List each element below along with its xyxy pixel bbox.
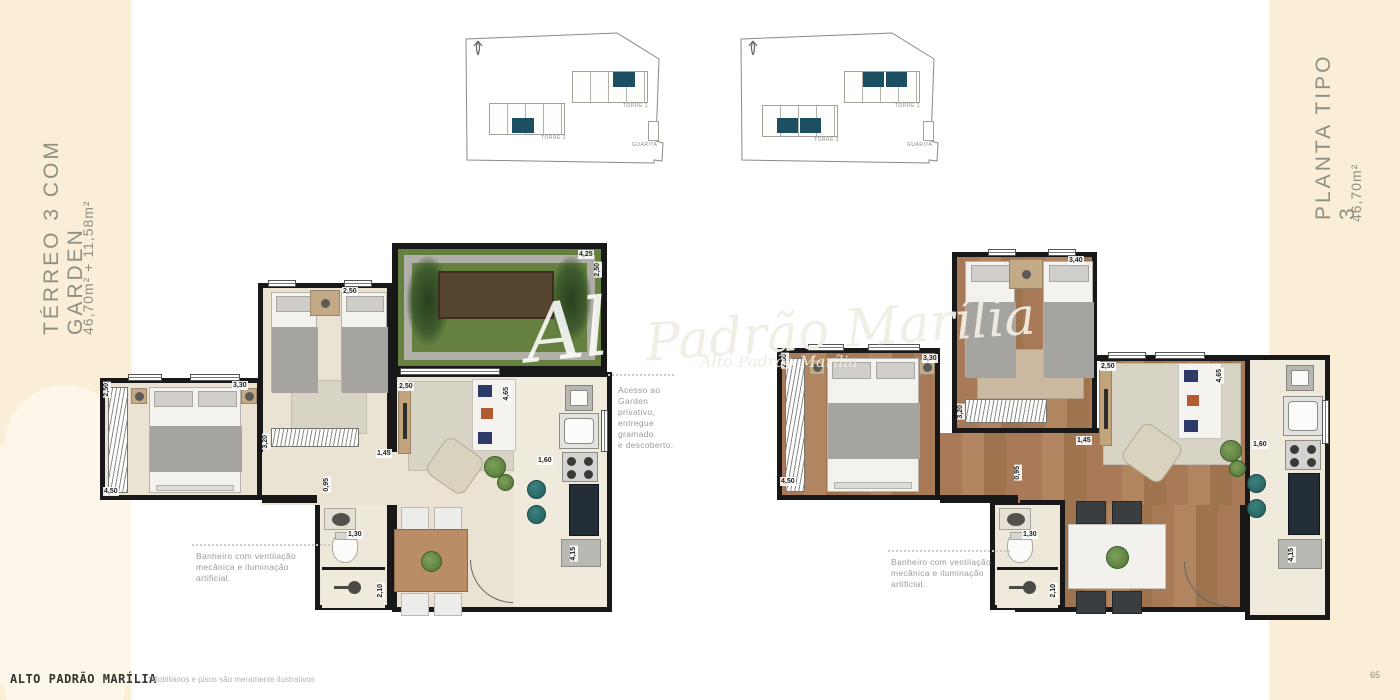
highlighted-unit <box>863 72 884 87</box>
tower-grid <box>573 72 647 102</box>
wall-segment <box>940 495 1018 503</box>
microwave <box>1286 365 1314 391</box>
dim-kitchen-width: 1,60 <box>1252 440 1268 449</box>
stool <box>1247 499 1266 518</box>
tower-2-footprint <box>762 105 838 137</box>
window <box>868 344 920 351</box>
page-subtitle-left: 46,70m² + 11,58m² <box>80 175 96 335</box>
torre1-label: TORRE 1 <box>623 103 648 109</box>
guarita-building <box>923 121 934 141</box>
nightstand <box>809 359 825 375</box>
kitchen-counter <box>1288 473 1320 535</box>
single-bed <box>965 261 1015 377</box>
torre1-label: TORRE 1 <box>895 103 920 109</box>
garden-annotation: Acesso ao Garden privativo, entregue gra… <box>618 385 682 451</box>
stool <box>1247 474 1266 493</box>
page-number: 65 <box>1370 670 1380 680</box>
disclaimer-text: *Mobiliários e pisos são meramente ilust… <box>148 675 315 684</box>
bathroom-annotation-right: Banheiro com ventilação mecânica e ilumi… <box>891 557 1011 590</box>
tv-console <box>1099 370 1112 446</box>
highlighted-unit <box>777 118 798 133</box>
tower-1-footprint <box>572 71 648 103</box>
annotation-leader-line <box>192 544 330 546</box>
window <box>1048 249 1076 256</box>
dim-living-width: 2,50 <box>1100 362 1116 371</box>
kitchen-sink <box>1283 396 1323 436</box>
tower-1-footprint <box>844 71 920 103</box>
dining-chair <box>1112 501 1142 524</box>
table-plant <box>1106 546 1129 569</box>
tower-2-footprint <box>489 103 565 135</box>
double-bed <box>827 358 919 492</box>
north-arrow-icon <box>744 39 762 57</box>
dim-bedroom2-width: 3,40 <box>1068 256 1084 265</box>
dining-chair <box>1076 501 1106 524</box>
annotation-leader-line <box>608 374 674 376</box>
floor-plan-tipo-3: 3,40 3,20 2,50 4,50 3,30 <box>0 0 1400 700</box>
torre2-label: TORRE 2 <box>814 137 839 143</box>
dim-bedroom1-length: 4,50 <box>780 477 796 486</box>
brand-logo-text: ALTO PADRÃO MARÍLIA <box>10 672 157 686</box>
guarita-building <box>648 121 659 141</box>
dim-bedroom1-depth: 2,50 <box>781 353 789 369</box>
north-arrow-icon <box>469 39 487 57</box>
dim-bedroom1-width: 3,30 <box>922 354 938 363</box>
highlighted-unit <box>512 118 534 133</box>
guarita-label: GUARITA <box>907 142 932 148</box>
bedroom-2 <box>952 252 1097 433</box>
wardrobe <box>965 399 1047 423</box>
guarita-label: GUARITA <box>632 142 657 148</box>
kitchen-cabinet <box>1278 539 1322 569</box>
dim-bathroom-width: 1,30 <box>1022 530 1038 539</box>
plant <box>1220 440 1242 462</box>
dining-chair <box>1076 591 1106 614</box>
dim-hall-width: 1,45 <box>1076 436 1092 445</box>
site-plan-left: TORRE 1 TORRE 2 GUARITA <box>459 29 671 171</box>
bathroom-annotation-left: Banheiro com ventilação mecânica e ilumi… <box>196 551 316 584</box>
dim-bathroom-depth: 2,10 <box>1050 583 1058 599</box>
annotation-leader-line <box>888 550 1010 552</box>
wardrobe <box>785 358 805 492</box>
torre2-label: TORRE 2 <box>541 135 566 141</box>
stove <box>1285 440 1321 470</box>
highlighted-unit <box>886 72 907 87</box>
bathroom-sink <box>999 508 1031 530</box>
plant <box>1229 460 1246 477</box>
window <box>988 249 1016 256</box>
dining-chair <box>1112 591 1142 614</box>
bedroom-1 <box>777 348 940 500</box>
dim-bedroom2-wardrobe: 3,20 <box>957 404 965 420</box>
page-subtitle-right: 46,70m² <box>1348 150 1364 222</box>
brochure-page: TÉRREO 3 COM GARDEN 46,70m² + 11,58m² PL… <box>0 0 1400 700</box>
site-plan-right: TORRE 1 TORRE 2 GUARITA <box>734 29 946 171</box>
window <box>1155 352 1205 359</box>
window <box>1322 400 1329 444</box>
highlighted-unit <box>800 118 821 133</box>
highlighted-unit <box>613 72 635 87</box>
window <box>808 344 844 351</box>
shower-arm <box>1009 586 1025 589</box>
dim-kitchen-depth: 4,15 <box>1288 547 1296 563</box>
nightstand <box>1009 259 1043 289</box>
dim-living-depth: 4,65 <box>1216 368 1224 384</box>
single-bed <box>1043 261 1093 377</box>
dim-hall-depth: 0,95 <box>1014 465 1022 481</box>
hall-floor <box>940 433 1020 503</box>
window <box>1108 352 1146 359</box>
